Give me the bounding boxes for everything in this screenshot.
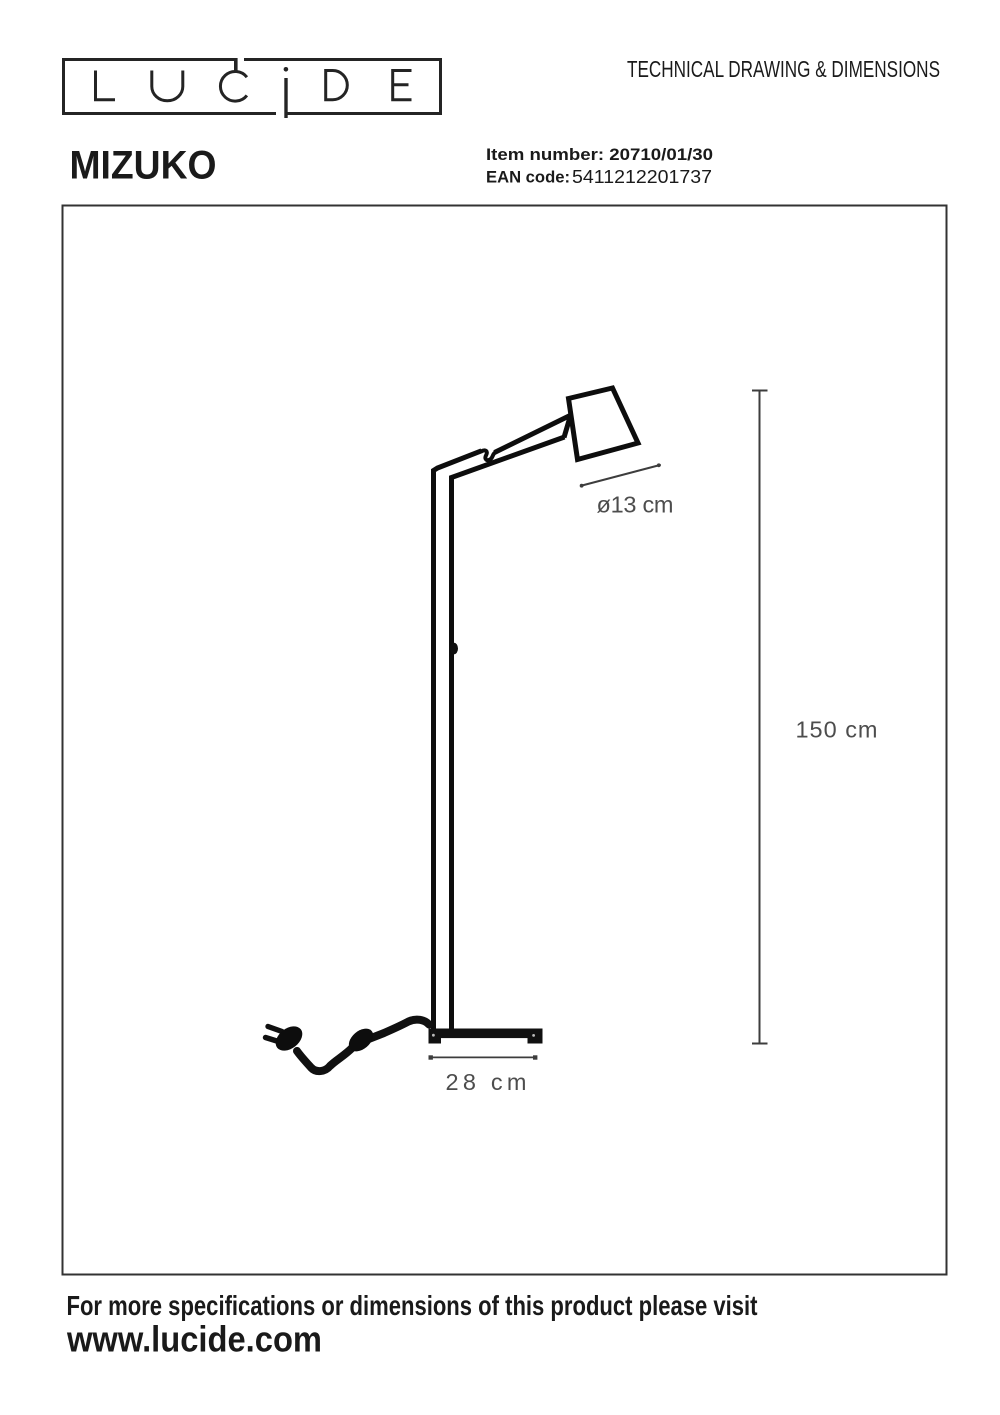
svg-text:MIZUKO: MIZUKO	[70, 144, 217, 188]
svg-text:5411212201737: 5411212201737	[572, 167, 712, 187]
svg-text:TECHNICAL DRAWING & DIMENSIONS: TECHNICAL DRAWING & DIMENSIONS	[627, 56, 940, 82]
svg-text:Item number: 20710/01/30: Item number: 20710/01/30	[486, 146, 713, 164]
svg-text:ø13 cm: ø13 cm	[597, 492, 674, 518]
svg-text:For more specifications or dim: For more specifications or dimensions of…	[67, 1290, 758, 1321]
svg-text:150 cm: 150 cm	[796, 717, 878, 743]
svg-text:www.lucide.com: www.lucide.com	[66, 1319, 322, 1360]
svg-text:EAN code:: EAN code:	[486, 168, 570, 186]
svg-text:28 cm: 28 cm	[446, 1069, 527, 1095]
